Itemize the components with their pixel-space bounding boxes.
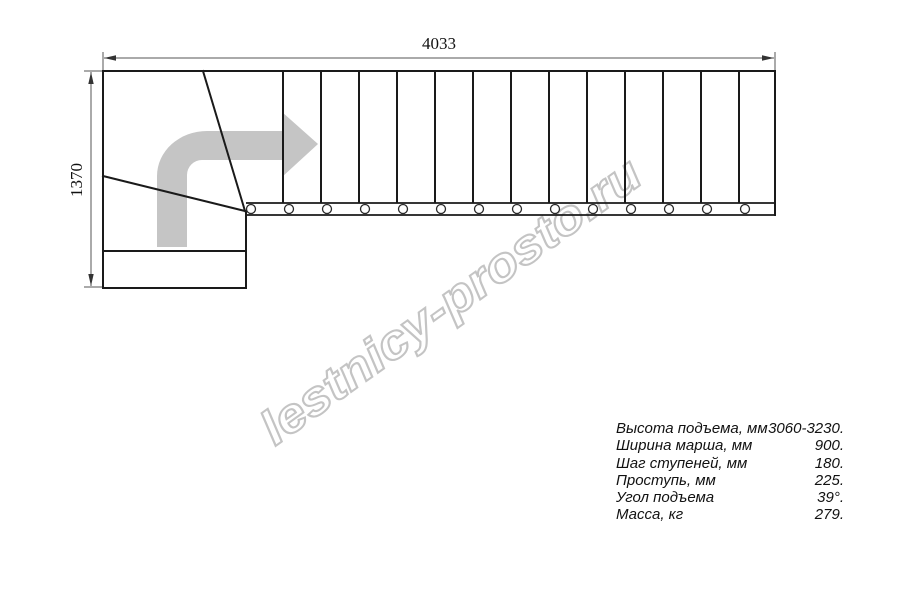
spec-value: 180. [815,455,844,472]
baluster-circle [703,205,712,214]
spec-value: 900. [815,437,844,454]
stair-plan-canvas: lestnicy-prosto.ru 4033 [0,0,900,600]
stair-outline [103,71,775,288]
baluster-circle [627,205,636,214]
height-dimension-label: 1370 [67,163,86,197]
baluster-circle [475,205,484,214]
spec-row: Шаг ступеней, мм 180. [616,455,844,472]
spec-row: Ширина марша, мм 900. [616,437,844,454]
baluster-circle [399,205,408,214]
spec-label: Ширина марша, мм [616,437,752,454]
baluster-circle [285,205,294,214]
spec-row: Высота подъема, мм 3060-3230. [616,420,844,437]
baluster-circle [361,205,370,214]
spec-row: Масса, кг 279. [616,506,844,523]
direction-arrow-shape [157,112,318,247]
width-arrow-right [762,55,774,60]
step-lines [283,71,739,203]
dimension-width: 4033 [103,34,775,70]
baluster-circle [323,205,332,214]
baluster-circle [589,205,598,214]
height-arrow-top [88,72,93,84]
baluster-circle [741,205,750,214]
baluster-circle [437,205,446,214]
spec-row: Угол подъема 39°. [616,489,844,506]
spec-label: Угол подъема [616,489,714,506]
baluster-circle [513,205,522,214]
spec-value: 279. [815,506,844,523]
width-arrow-left [104,55,116,60]
baluster-circle [665,205,674,214]
spec-label: Высота подъема, мм [616,420,768,437]
dimension-height: 1370 [67,71,102,287]
baluster-circle [247,205,256,214]
spec-row: Проступь, мм 225. [616,472,844,489]
watermark-text: lestnicy-prosto.ru [251,147,652,455]
direction-arrow-icon [157,112,318,247]
stair-plan-drawing [103,71,775,288]
spec-value: 3060-3230. [768,420,844,437]
spec-label: Проступь, мм [616,472,716,489]
width-dimension-label: 4033 [422,34,456,53]
spec-value: 39°. [817,489,844,506]
specs-table: Высота подъема, мм 3060-3230. Ширина мар… [616,420,844,524]
watermark: lestnicy-prosto.ru [251,147,652,455]
baluster-circle [551,205,560,214]
spec-value: 225. [815,472,844,489]
spec-label: Шаг ступеней, мм [616,455,747,472]
spec-label: Масса, кг [616,506,683,523]
baluster-circles [247,205,750,214]
height-arrow-bottom [88,274,93,286]
